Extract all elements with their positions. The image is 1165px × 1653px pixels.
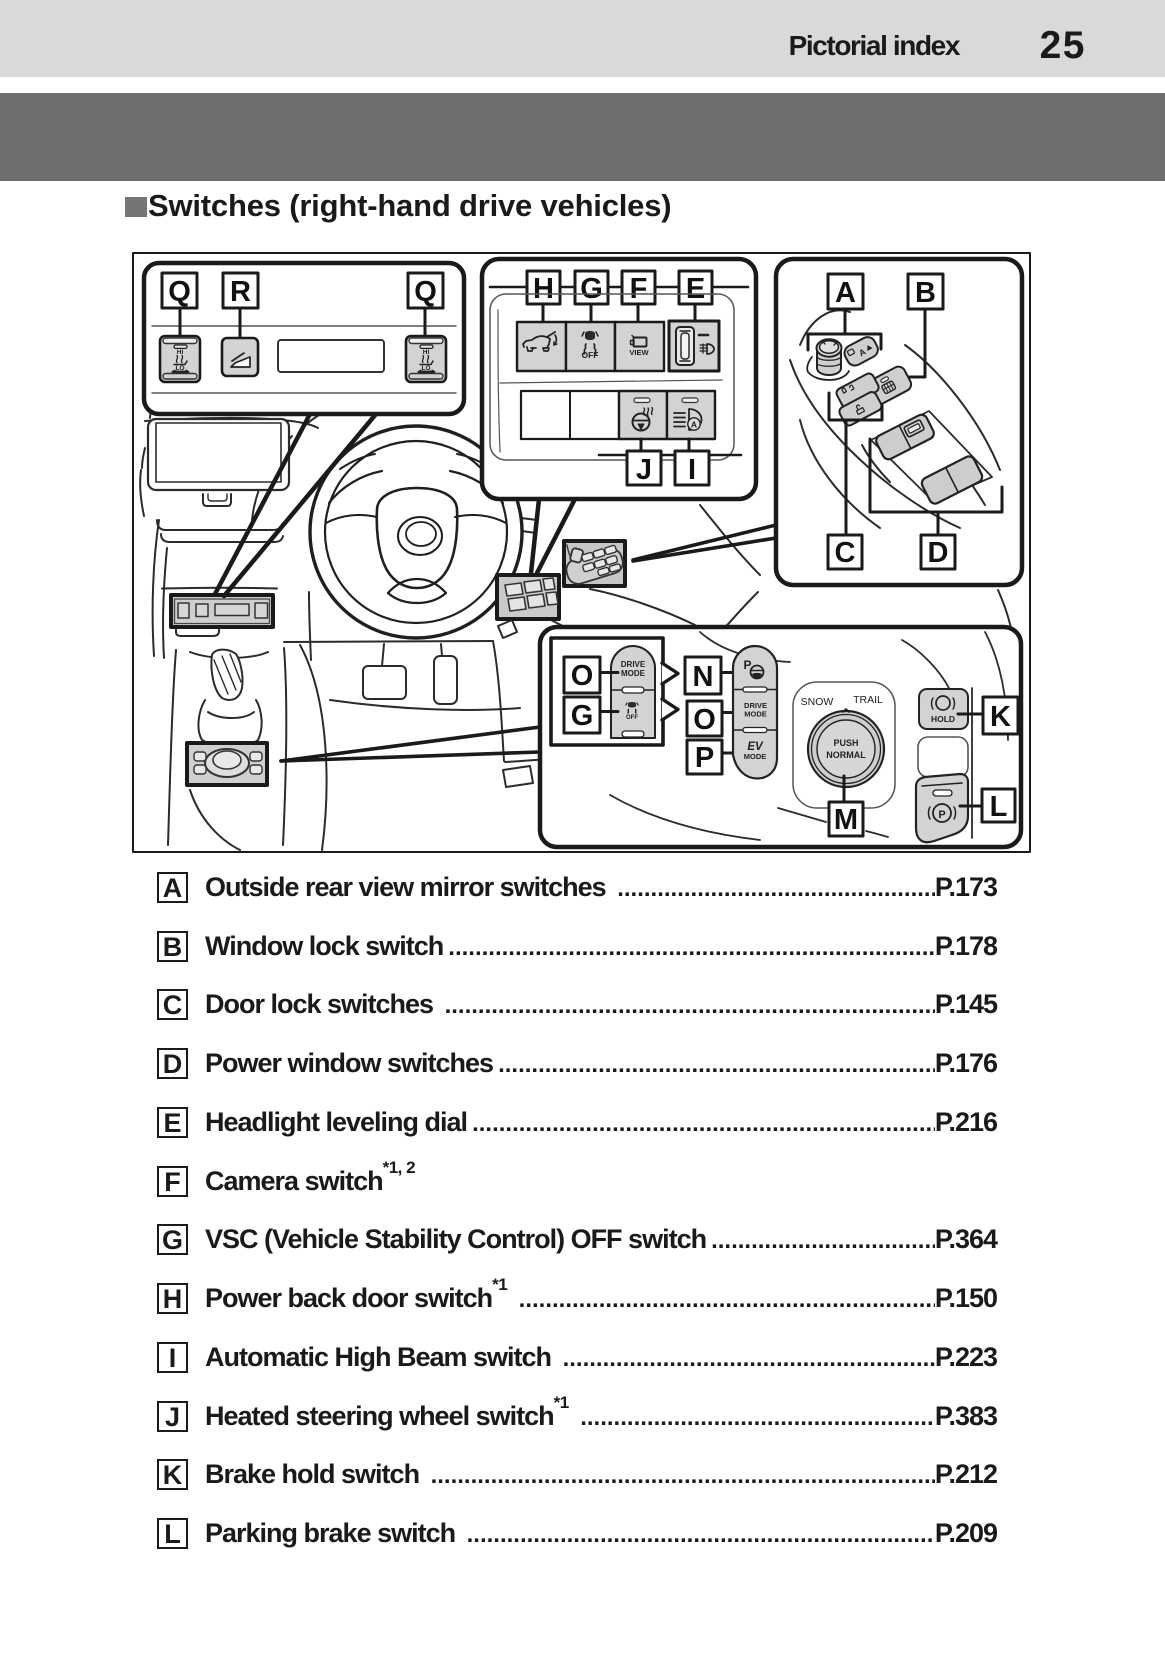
svg-text:Q: Q bbox=[414, 276, 437, 308]
svg-text:A: A bbox=[835, 277, 856, 309]
svg-text:VIEW: VIEW bbox=[629, 348, 649, 357]
svg-text:OFF: OFF bbox=[626, 715, 638, 721]
svg-text:G: G bbox=[571, 700, 594, 732]
svg-text:J: J bbox=[636, 454, 652, 486]
svg-text:L: L bbox=[990, 791, 1008, 823]
svg-text:MODE: MODE bbox=[744, 710, 767, 719]
svg-text:B: B bbox=[915, 277, 936, 309]
svg-text:D: D bbox=[928, 537, 949, 569]
svg-text:SNOW: SNOW bbox=[801, 696, 834, 708]
svg-text:K: K bbox=[990, 701, 1011, 733]
svg-text:H: H bbox=[533, 273, 554, 305]
svg-text:HOLD: HOLD bbox=[931, 714, 955, 724]
svg-text:A: A bbox=[691, 420, 697, 430]
svg-text:C: C bbox=[835, 537, 856, 569]
svg-text:M: M bbox=[834, 804, 858, 836]
svg-text:PUSH: PUSH bbox=[833, 738, 858, 748]
svg-text:OFF: OFF bbox=[582, 350, 599, 360]
svg-text:E: E bbox=[686, 273, 705, 305]
svg-text:HI: HI bbox=[177, 349, 184, 356]
svg-text:Q: Q bbox=[168, 276, 191, 308]
svg-text:MODE: MODE bbox=[621, 669, 646, 678]
svg-text:O: O bbox=[571, 660, 594, 692]
svg-text:NORMAL: NORMAL bbox=[826, 750, 866, 760]
svg-text:DRIVE: DRIVE bbox=[621, 660, 646, 669]
svg-text:O: O bbox=[693, 704, 716, 736]
svg-text:P: P bbox=[938, 809, 945, 821]
svg-text:I: I bbox=[688, 454, 696, 486]
svg-text:F: F bbox=[630, 273, 648, 305]
svg-text:MODE: MODE bbox=[744, 752, 767, 761]
svg-text:HI: HI bbox=[423, 349, 430, 356]
svg-text:N: N bbox=[693, 661, 714, 693]
svg-text:R: R bbox=[230, 276, 251, 308]
svg-text:TRAIL: TRAIL bbox=[853, 694, 883, 706]
svg-text:P: P bbox=[695, 742, 714, 774]
svg-text:G: G bbox=[580, 273, 603, 305]
